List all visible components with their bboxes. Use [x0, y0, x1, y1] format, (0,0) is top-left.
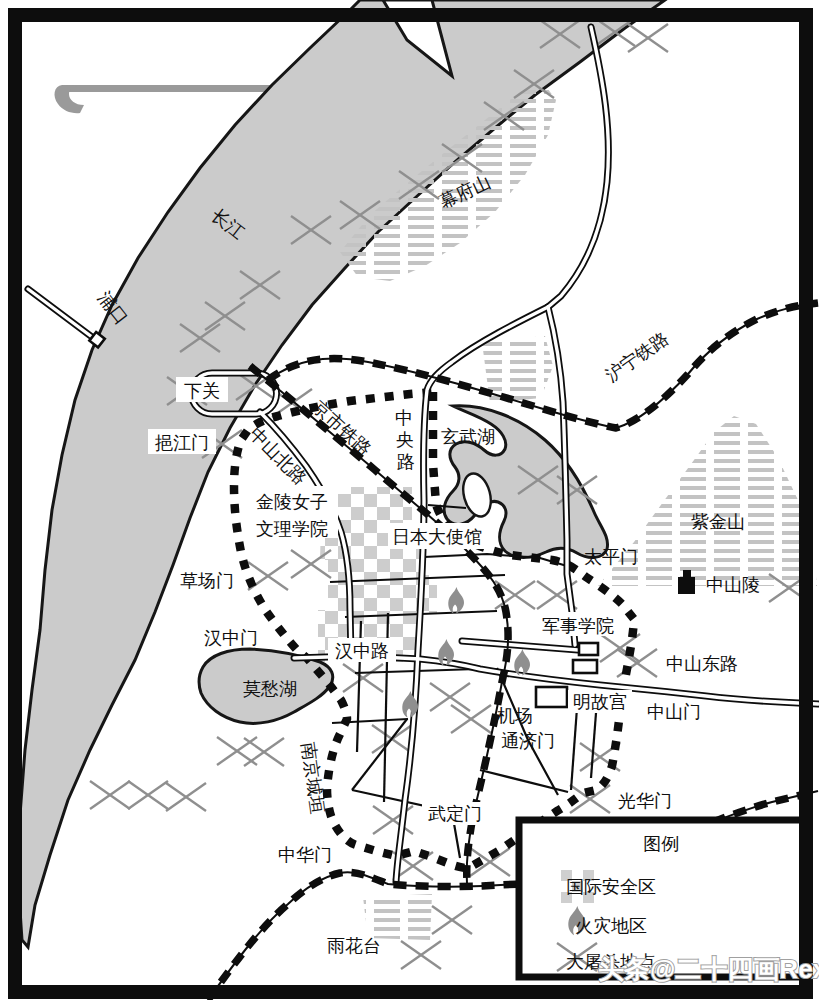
label-guanghuamen: 光华门 — [618, 791, 672, 811]
label-jinling-college-line1: 金陵女子 — [256, 492, 328, 512]
military-academy-building — [573, 660, 597, 673]
label-nanjing-wall: 南京城垣 — [298, 741, 328, 815]
legend-safety-zone-label: 国际安全区 — [566, 877, 656, 897]
label-zijinshan: 紫金山 — [691, 512, 745, 532]
massacre-x-mark — [432, 906, 472, 934]
street — [571, 708, 577, 790]
label-taipingmen: 太平门 — [584, 547, 638, 567]
label-hanzhong-road: 汉中路 — [335, 641, 389, 661]
label-zhongyang-road-char3: 路 — [397, 452, 415, 472]
massacre-x-mark — [451, 705, 491, 733]
label-wudingmen: 武定门 — [428, 804, 482, 824]
massacre-x-mark — [430, 683, 470, 711]
label-hanzhongmen: 汉中门 — [204, 628, 258, 648]
label-ming-palace: 明故宫 — [573, 692, 627, 712]
label-xuanwu-lake: 玄武湖 — [441, 427, 495, 447]
label-zhongshanling: 中山陵 — [706, 575, 760, 595]
label-huning-railway: 沪宁铁路 — [602, 328, 672, 386]
massacre-x-mark — [166, 783, 206, 811]
label-yijiangmen: 挹江门 — [155, 433, 209, 453]
military-academy-building — [579, 643, 598, 655]
nanjing-map: 长江 浦口 幕府山 下关 挹江门 京市铁路 中 央 路 玄武湖 沪宁铁路 紫金山… — [0, 0, 819, 1000]
legend-title: 图例 — [643, 834, 679, 854]
watermark: 头条@二十四画Rex — [598, 954, 819, 984]
map-canvas: 长江 浦口 幕府山 下关 挹江门 京市铁路 中 央 路 玄武湖 沪宁铁路 紫金山… — [0, 0, 819, 1000]
legend-fire-label: 火灾地区 — [575, 916, 647, 936]
label-zhongyang-road-char1: 中 — [395, 408, 413, 428]
label-zhonghuamen: 中华门 — [278, 845, 332, 865]
massacre-x-mark — [401, 941, 441, 969]
label-zhongshan-east-road: 中山东路 — [666, 654, 738, 674]
label-zhongyang-road-char2: 央 — [396, 430, 414, 450]
label-zhongshanmen: 中山门 — [647, 702, 701, 722]
label-mochou-lake: 莫愁湖 — [243, 679, 297, 699]
label-xiaguan: 下关 — [184, 381, 220, 401]
yuhuatai-hill-hatch — [363, 894, 432, 940]
fire-icon — [448, 587, 464, 614]
massacre-x-mark — [128, 781, 168, 809]
massacre-x-mark — [628, 24, 668, 52]
massacre-x-mark — [244, 738, 284, 766]
label-tongjimen: 通济门 — [501, 731, 555, 751]
massacre-x-mark — [291, 550, 331, 578]
label-yuhuatai: 雨花台 — [327, 936, 381, 956]
label-jinling-college-line2: 文理学院 — [256, 519, 328, 539]
label-japanese-embassy: 日本大使馆 — [392, 527, 482, 547]
label-military-academy: 军事学院 — [542, 616, 614, 636]
label-caochangmen: 草场门 — [180, 571, 234, 591]
massacre-x-mark — [90, 781, 130, 809]
label-airport: 机场 — [497, 706, 533, 726]
label-jingshi-railway: 京市铁路 — [309, 396, 376, 459]
street — [424, 554, 567, 566]
fire-icon — [514, 649, 530, 676]
ming-palace-building — [536, 687, 567, 707]
massacre-x-mark — [343, 664, 383, 692]
